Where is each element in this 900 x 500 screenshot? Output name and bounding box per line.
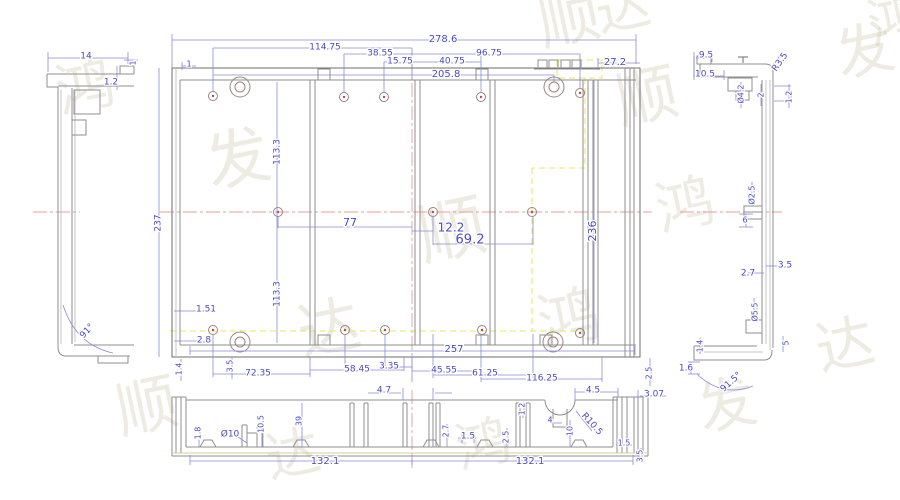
dimension-label-right-6: 6: [742, 216, 747, 225]
dimension-label-bottom-1.8: 1.8: [194, 427, 203, 440]
dimension-label-left-14: 14: [80, 52, 92, 62]
dimension-label-bottom-10: 10: [566, 426, 575, 436]
dimension-label-right-1.6: 1.6: [679, 364, 694, 374]
mounting-holes-small: [209, 89, 585, 338]
dimension-label-bottom-2.7: 2.7: [442, 425, 451, 438]
dimension-label-main-278.6: 278.6: [429, 34, 458, 45]
dimension-label-left-91°: 91°: [78, 322, 96, 341]
dimension-label-right-1.2: 1.2: [785, 91, 794, 104]
left-profile-view: [47, 52, 138, 363]
dimension-label-main-72.35: 72.35: [245, 369, 271, 379]
dimension-label-right-3.5: 3.5: [778, 261, 792, 271]
dimension-label-bottom-1.2: 1.2: [518, 403, 527, 416]
main-plan-view: [159, 34, 650, 386]
dimension-label-bottom-4: 4: [547, 416, 552, 425]
dimension-label-right-Ø5.5: Ø5.5: [750, 302, 760, 321]
dimension-label-right-1.4: 1.4: [696, 340, 705, 353]
dimension-label-bottom-1.5: 1.5: [618, 439, 631, 448]
dimension-label-main-205.8: 205.8: [432, 69, 461, 80]
dimension-label-main-45.55: 45.55: [431, 366, 457, 376]
dimension-label-right-5: 5: [782, 340, 791, 345]
dimension-label-bottom-R10.5: R10.5: [579, 411, 604, 437]
dimension-label-bottom-132.1: 132.1: [516, 456, 545, 467]
dimension-label-main-237: 237: [154, 214, 164, 231]
dimension-label-bottom-4.7: 4.7: [377, 386, 391, 396]
dimension-label-left-1.2: 1.2: [104, 78, 118, 88]
cad-drawing: 278.6114.7538.5515.7540.7596.75205.827.2…: [0, 0, 900, 500]
mounting-holes-large: [230, 77, 564, 352]
dimension-label-right-Ø4.2: Ø4.2: [736, 84, 746, 103]
dimension-label-right-Ø2.5: Ø2.5: [747, 185, 757, 204]
dimension-label-main-15.75: 15.75: [387, 57, 413, 67]
dimension-label-right-10.5: 10.5: [695, 70, 715, 80]
dimension-label-left-1: 1: [129, 60, 138, 65]
dimension-label-main-69.2: 69.2: [456, 233, 485, 248]
dimension-label-main-257: 257: [444, 344, 463, 355]
dimension-label-main-113.3: 113.3: [273, 139, 283, 165]
dimension-label-bottom-Ø10: Ø10: [221, 429, 240, 440]
dimension-label-bottom-10.5: 10.5: [257, 415, 266, 433]
dimension-label-main-2.8: 2.8: [197, 336, 212, 346]
dimension-label-bottom-3.5: 3.5: [636, 450, 645, 463]
dimension-label-bottom-1.5: 1.5: [461, 432, 475, 442]
dimension-label-bottom-3.07: 3.07: [644, 390, 664, 400]
dimension-label-bottom-4.5: 4.5: [586, 386, 600, 396]
dimension-label-main-96.75: 96.75: [476, 49, 502, 59]
cad-drawing-canvas: 顺达鸿发顺鸿发顺达顺鸿发达鸿达鸿: [0, 0, 900, 500]
dimension-label-main-236: 236: [586, 221, 599, 242]
main-view-dimension-lines: [159, 34, 650, 386]
dimension-label-main-1: 1: [186, 60, 191, 69]
dimension-label-right-9.5: 9.5: [699, 51, 713, 61]
dimension-label-right-R3.5: R3.5: [770, 51, 790, 74]
dimension-label-bottom-39: 39: [295, 416, 304, 426]
dimension-label-main-114.75: 114.75: [309, 43, 341, 53]
dimension-label-main-58.45: 58.45: [344, 365, 370, 375]
dimension-label-main-3.35: 3.35: [379, 362, 399, 372]
dimension-label-right-2.7: 2.7: [741, 269, 755, 279]
dimension-label-main-1.4: 1.4: [175, 363, 184, 376]
dimension-label-main-3.5: 3.5: [226, 360, 235, 373]
dimension-label-main-77: 77: [343, 216, 357, 229]
dimension-label-main-2.5: 2.5: [645, 367, 654, 380]
dimension-label-main-61.25: 61.25: [472, 369, 498, 379]
dimension-label-bottom-2.5: 2.5: [502, 431, 511, 444]
dimension-label-main-1.51: 1.51: [196, 305, 216, 315]
dimension-label-main-27.2: 27.2: [604, 57, 626, 68]
dimension-label-main-116.25: 116.25: [526, 374, 558, 384]
dimension-label-right-2: 2: [757, 92, 766, 97]
dimension-label-right-91.5°: 91.5°: [719, 370, 744, 394]
dimension-label-main-40.75: 40.75: [439, 57, 465, 67]
dimension-label-bottom-132.1: 132.1: [311, 456, 340, 467]
dimension-label-main-113.3: 113.3: [273, 281, 283, 307]
